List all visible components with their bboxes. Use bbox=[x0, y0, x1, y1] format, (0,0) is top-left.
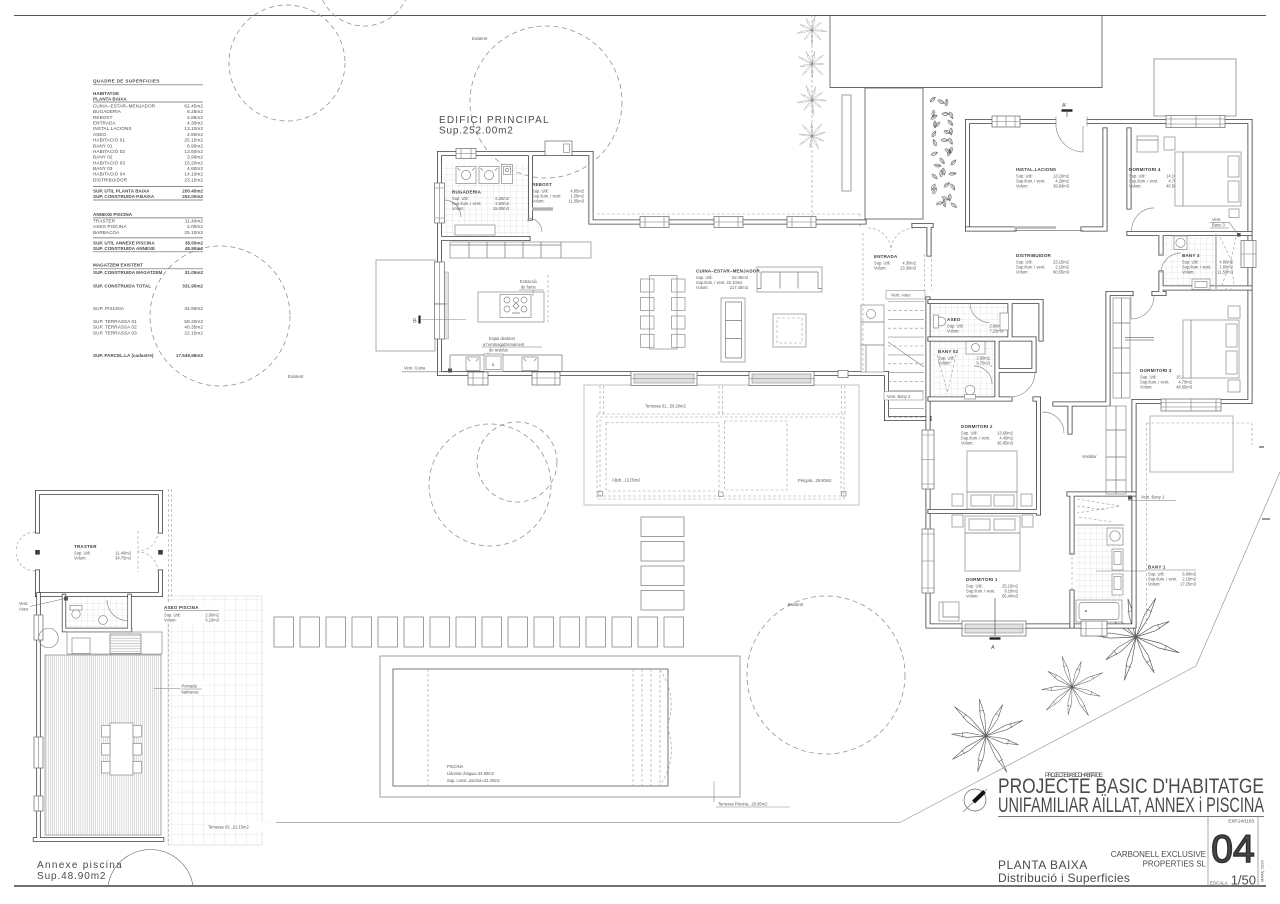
svg-text:Volum:: Volum: bbox=[532, 198, 545, 203]
svg-text:PLANTA BAIXA: PLANTA BAIXA bbox=[998, 858, 1088, 872]
svg-text:34.90m2: 34.90m2 bbox=[184, 306, 203, 311]
svg-text:4.85m2: 4.85m2 bbox=[187, 115, 203, 120]
svg-text:13.60m2: 13.60m2 bbox=[184, 149, 203, 154]
svg-text:Existent: Existent bbox=[472, 36, 488, 41]
svg-text:CARBONELL EXCLUSIVE: CARBONELL EXCLUSIVE bbox=[1111, 850, 1206, 859]
svg-text:17.25m3: 17.25m3 bbox=[1180, 581, 1197, 586]
svg-text:11.40m2: 11.40m2 bbox=[185, 219, 204, 224]
svg-text:15.00m3: 15.00m3 bbox=[493, 206, 510, 211]
svg-text:Volum:: Volum: bbox=[966, 593, 979, 598]
svg-text:25.10m2: 25.10m2 bbox=[184, 230, 203, 235]
svg-text:SUP. CONSTRUIDA TOTAL: SUP. CONSTRUIDA TOTAL bbox=[93, 284, 151, 289]
svg-text:38.50m2: 38.50m2 bbox=[185, 240, 204, 245]
svg-text:4.30m2: 4.30m2 bbox=[187, 121, 203, 126]
svg-text:62.45m2: 62.45m2 bbox=[184, 104, 203, 109]
svg-text:Volum:: Volum: bbox=[1016, 183, 1029, 188]
svg-text:Volum:: Volum: bbox=[947, 328, 960, 333]
svg-text:1/50: 1/50 bbox=[1231, 873, 1256, 888]
svg-text:DORMITORI 3: DORMITORI 3 bbox=[1140, 368, 1172, 373]
svg-text:Volum:: Volum: bbox=[1148, 581, 1161, 586]
svg-text:Extracció: Extracció bbox=[520, 279, 538, 284]
svg-text:HABITACIÓ 01: HABITACIÓ 01 bbox=[93, 137, 125, 143]
svg-text:ASEO: ASEO bbox=[947, 317, 961, 322]
svg-text:Volum:: Volum: bbox=[164, 618, 177, 623]
svg-text:36.85m3: 36.85m3 bbox=[997, 440, 1014, 445]
svg-text:BANY 03: BANY 03 bbox=[93, 166, 113, 171]
svg-text:BANY 02: BANY 02 bbox=[938, 349, 959, 354]
svg-text:Aljub...13.05m2: Aljub...13.05m2 bbox=[612, 478, 641, 483]
svg-text:DISTRIBUIDOR: DISTRIBUIDOR bbox=[93, 177, 128, 182]
svg-text:Volum:: Volum: bbox=[1016, 269, 1029, 274]
svg-text:ENTRADA: ENTRADA bbox=[874, 254, 898, 259]
svg-text:A': A' bbox=[1062, 103, 1067, 109]
svg-text:Porxada: Porxada bbox=[182, 684, 198, 689]
svg-text:SUP. TERRASSA 02: SUP. TERRASSA 02 bbox=[93, 325, 137, 330]
svg-text:SUP. PARCEL.LA (cadastre): SUP. PARCEL.LA (cadastre) bbox=[93, 353, 154, 358]
svg-text:34.75m3: 34.75m3 bbox=[115, 556, 132, 561]
svg-text:48.90m2: 48.90m2 bbox=[185, 246, 204, 251]
svg-text:13.10m2: 13.10m2 bbox=[184, 126, 203, 131]
svg-text:BANY 3: BANY 3 bbox=[1182, 253, 1200, 258]
svg-text:BANY 02: BANY 02 bbox=[93, 155, 113, 160]
svg-text:Volum:: Volum: bbox=[74, 556, 87, 561]
svg-text:QUADRE DE SUPERFICIES: QUADRE DE SUPERFICIES bbox=[93, 79, 160, 84]
svg-text:BANY 1: BANY 1 bbox=[1148, 565, 1166, 570]
svg-text:CUINA–ESTAR–MENJADOR: CUINA–ESTAR–MENJADOR bbox=[696, 269, 760, 274]
svg-text:14.10m2: 14.10m2 bbox=[184, 172, 203, 177]
svg-text:SUP. UTIL PLANTA BAIXA: SUP. UTIL PLANTA BAIXA bbox=[93, 189, 150, 194]
svg-text:EXP.24/1183: EXP.24/1183 bbox=[1228, 819, 1254, 824]
svg-text:DISTRIBUIDOR: DISTRIBUIDOR bbox=[1016, 253, 1051, 258]
svg-text:SUP. CONSTRUIDA ANNEXE: SUP. CONSTRUIDA ANNEXE bbox=[93, 246, 155, 251]
svg-text:HABITACIÓ 03: HABITACIÓ 03 bbox=[93, 159, 125, 165]
svg-text:A: A bbox=[991, 645, 995, 651]
svg-text:PROPERTIES SL: PROPERTIES SL bbox=[1143, 860, 1207, 869]
svg-text:SUP. PISCINA: SUP. PISCINA bbox=[93, 306, 125, 311]
svg-text:80.55m3: 80.55m3 bbox=[1053, 269, 1070, 274]
svg-text:HABITACIÓ 02: HABITACIÓ 02 bbox=[93, 148, 125, 154]
svg-text:ASEO PISCINA: ASEO PISCINA bbox=[93, 224, 127, 229]
svg-text:252.00m2: 252.00m2 bbox=[182, 194, 203, 199]
svg-text:59.20m2: 59.20m2 bbox=[184, 319, 203, 324]
svg-text:331.95m2: 331.95m2 bbox=[182, 284, 203, 289]
svg-text:31.05m2: 31.05m2 bbox=[185, 270, 204, 275]
svg-text:Bany 3: Bany 3 bbox=[1212, 223, 1225, 228]
svg-text:ASEO: ASEO bbox=[93, 132, 106, 137]
svg-text:2.90m2: 2.90m2 bbox=[187, 132, 203, 137]
svg-text:BANY 01: BANY 01 bbox=[93, 143, 113, 148]
svg-text:de residus: de residus bbox=[489, 348, 508, 353]
svg-text:Sup. const. piscina=42.20m2: Sup. const. piscina=42.20m2 bbox=[447, 778, 500, 783]
svg-text:6.90m2: 6.90m2 bbox=[187, 143, 203, 148]
svg-text:DORMITORI 1: DORMITORI 1 bbox=[966, 577, 998, 582]
svg-text:ENTRADA: ENTRADA bbox=[93, 121, 116, 126]
svg-text:Volum:: Volum: bbox=[1129, 183, 1142, 188]
svg-text:Terrassa 01...59.20m2: Terrassa 01...59.20m2 bbox=[645, 404, 686, 409]
svg-text:de fums: de fums bbox=[521, 285, 536, 290]
svg-text:ESCALA: ESCALA bbox=[1210, 881, 1228, 886]
svg-text:39.93m3: 39.93m3 bbox=[1053, 183, 1070, 188]
svg-text:Sup.48.90m2: Sup.48.90m2 bbox=[37, 871, 106, 882]
svg-text:Volum:: Volum: bbox=[1140, 384, 1153, 389]
svg-text:HABITACIÓ 04: HABITACIÓ 04 bbox=[93, 171, 125, 177]
svg-text:Existent: Existent bbox=[288, 374, 304, 379]
svg-text:EDIFICI PRINCIPAL: EDIFICI PRINCIPAL bbox=[439, 115, 550, 126]
svg-text:Volum:: Volum: bbox=[938, 360, 951, 365]
svg-text:6.10m3: 6.10m3 bbox=[205, 618, 219, 623]
svg-text:200.45m2: 200.45m2 bbox=[182, 189, 203, 194]
svg-text:barbacoa: barbacoa bbox=[182, 690, 200, 695]
svg-text:REBOST: REBOST bbox=[93, 115, 113, 120]
svg-text:25.15m2: 25.15m2 bbox=[184, 138, 203, 143]
svg-text:SUP. CONSTRUIDA P.BAIXA: SUP. CONSTRUIDA P.BAIXA bbox=[93, 194, 155, 199]
svg-text:6.25m2: 6.25m2 bbox=[187, 109, 203, 114]
svg-text:SUP. TERRASSA 03: SUP. TERRASSA 03 bbox=[93, 330, 137, 335]
svg-text:BUGADERIA: BUGADERIA bbox=[452, 190, 482, 195]
svg-text:SUP. CONSTRUIDA MAGATZEM: SUP. CONSTRUIDA MAGATZEM bbox=[93, 270, 163, 275]
svg-text:11.50m3: 11.50m3 bbox=[1217, 269, 1233, 274]
svg-text:Volum:: Volum: bbox=[696, 285, 709, 290]
svg-text:15.20m2: 15.20m2 bbox=[184, 160, 203, 165]
svg-text:23.15m2: 23.15m2 bbox=[184, 177, 203, 182]
svg-text:Sup.252.00m2: Sup.252.00m2 bbox=[439, 126, 514, 137]
svg-text:Llàmina d'aigua=34.90m2: Llàmina d'aigua=34.90m2 bbox=[447, 771, 495, 776]
svg-text:Vent. Bany 2: Vent. Bany 2 bbox=[887, 394, 911, 399]
svg-text:Vestidor: Vestidor bbox=[1082, 454, 1097, 459]
svg-text:Annexe piscina: Annexe piscina bbox=[37, 860, 123, 871]
svg-text:Terrassa 03...22.15m2: Terrassa 03...22.15m2 bbox=[208, 825, 249, 830]
svg-text:DORMITORI 2: DORMITORI 2 bbox=[961, 424, 993, 429]
svg-text:TRASTER: TRASTER bbox=[93, 219, 116, 224]
svg-text:48.65m3: 48.65m3 bbox=[1176, 384, 1193, 389]
svg-text:INSTAL.LACIONS: INSTAL.LACIONS bbox=[1016, 167, 1056, 172]
svg-text:Volum:: Volum: bbox=[1182, 269, 1195, 274]
svg-text:PLANTA BAIXA: PLANTA BAIXA bbox=[93, 96, 127, 101]
svg-text:Existent: Existent bbox=[788, 602, 804, 607]
svg-text:MAGATZEM EXISTENT: MAGATZEM EXISTENT bbox=[93, 263, 143, 268]
svg-text:22.15m2: 22.15m2 bbox=[184, 330, 203, 335]
svg-text:Terrassa Piscina...20.95m2: Terrassa Piscina...20.95m2 bbox=[718, 802, 768, 807]
svg-text:Distribució i Superficies: Distribució i Superficies bbox=[998, 871, 1130, 885]
svg-text:BARBACOA: BARBACOA bbox=[93, 230, 120, 235]
svg-text:UNIFAMILIAR AÏLLAT, ANNEX i PI: UNIFAMILIAR AÏLLAT, ANNEX i PISCINA bbox=[998, 793, 1264, 817]
svg-text:PISCINA: PISCINA bbox=[447, 764, 464, 769]
svg-text:217.45m3: 217.45m3 bbox=[730, 285, 749, 290]
svg-text:Volum:: Volum: bbox=[452, 206, 465, 211]
svg-text:Aseo: Aseo bbox=[19, 607, 29, 612]
svg-text:ANNEXE PISCINA: ANNEXE PISCINA bbox=[93, 212, 133, 217]
svg-text:9.75m3: 9.75m3 bbox=[976, 360, 990, 365]
svg-text:a l'emmagatzemament: a l'emmagatzemament bbox=[483, 342, 525, 347]
svg-text:Vent. Aseo: Vent. Aseo bbox=[891, 293, 911, 298]
svg-text:REBOST: REBOST bbox=[532, 182, 552, 187]
svg-text:4.60m2: 4.60m2 bbox=[187, 166, 203, 171]
svg-text:BUGADERIA: BUGADERIA bbox=[93, 109, 122, 114]
svg-text:INSTAL.LACIONS: INSTAL.LACIONS bbox=[93, 126, 132, 131]
svg-text:2.00m2: 2.00m2 bbox=[187, 224, 203, 229]
svg-text:Volum:: Volum: bbox=[961, 440, 974, 445]
svg-text:DORMITORI 4: DORMITORI 4 bbox=[1129, 167, 1161, 172]
svg-text:CUINA–ESTAR–MENJADOR: CUINA–ESTAR–MENJADOR bbox=[93, 104, 156, 109]
svg-text:SUP. UTIL ANNEXE PISCINA: SUP. UTIL ANNEXE PISCINA bbox=[93, 240, 155, 245]
svg-text:Pèrgola...29.80m2: Pèrgola...29.80m2 bbox=[798, 478, 832, 483]
svg-text:Vent. Cuina: Vent. Cuina bbox=[404, 366, 426, 371]
svg-text:Vent. Bany 1: Vent. Bany 1 bbox=[1141, 495, 1165, 500]
svg-text:Vent.: Vent. bbox=[19, 601, 28, 606]
svg-text:11.65m3: 11.65m3 bbox=[568, 198, 584, 203]
svg-text:40.35m2: 40.35m2 bbox=[184, 325, 203, 330]
svg-text:04: 04 bbox=[1211, 828, 1254, 871]
svg-text:Volum:: Volum: bbox=[874, 265, 887, 270]
svg-text:SUP. TERRASSA 01: SUP. TERRASSA 01 bbox=[93, 319, 137, 324]
svg-text:ASEO PISCINA: ASEO PISCINA bbox=[164, 605, 199, 610]
svg-text:HABITATGE: HABITATGE bbox=[93, 91, 119, 96]
svg-text:3.90m2: 3.90m2 bbox=[187, 155, 203, 160]
svg-text:17.649,58m2: 17.649,58m2 bbox=[176, 353, 204, 358]
svg-text:TRASTER: TRASTER bbox=[74, 544, 97, 549]
svg-text:MARÇ 2024: MARÇ 2024 bbox=[1260, 859, 1265, 882]
svg-text:Vent.: Vent. bbox=[1212, 217, 1221, 222]
svg-text:65.40m3: 65.40m3 bbox=[1002, 593, 1019, 598]
svg-text:13.30m3: 13.30m3 bbox=[900, 265, 917, 270]
svg-text:B: B bbox=[413, 319, 417, 325]
svg-text:Espai destinat: Espai destinat bbox=[489, 336, 516, 341]
